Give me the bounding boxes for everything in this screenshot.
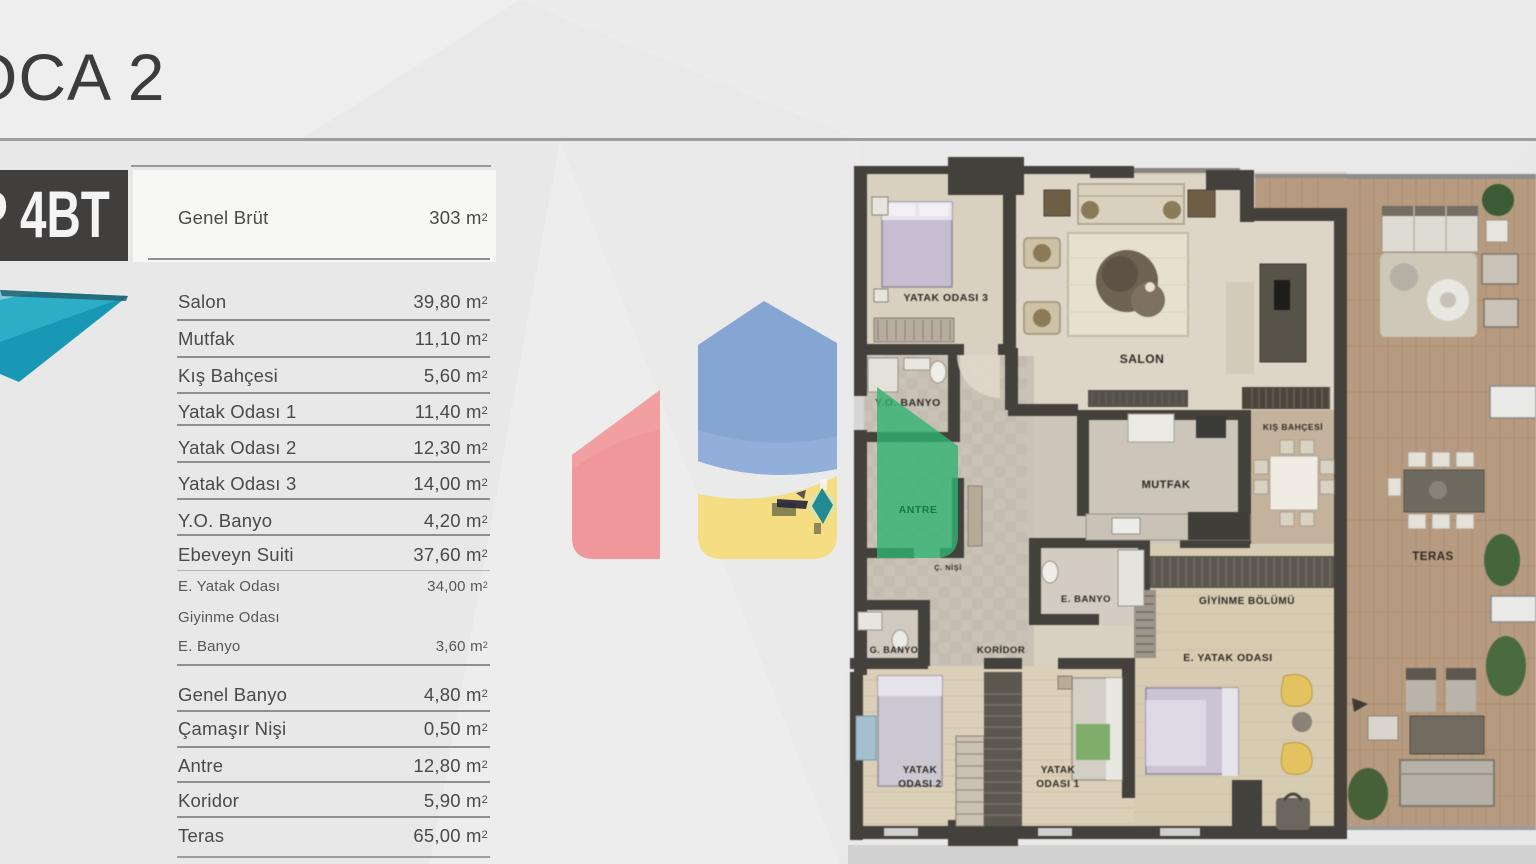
svg-text:ANTRE: ANTRE — [899, 504, 938, 516]
